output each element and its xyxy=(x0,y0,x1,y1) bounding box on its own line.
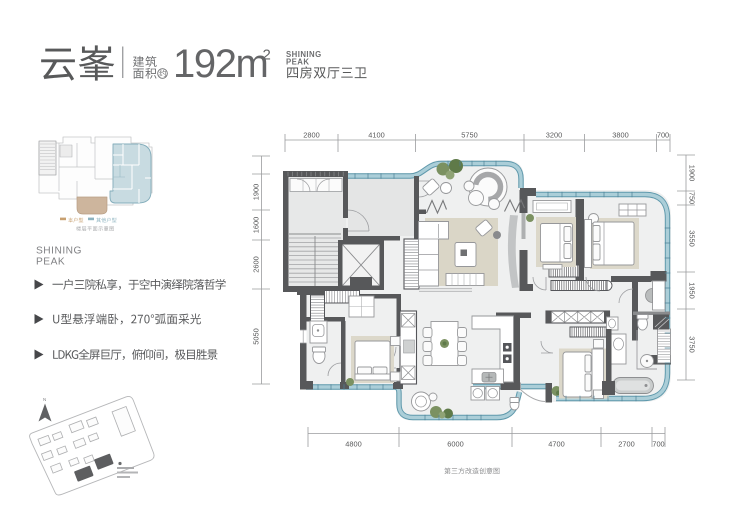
svg-text:192m: 192m xyxy=(173,42,267,86)
svg-text:PEAK: PEAK xyxy=(36,257,65,268)
svg-text:1950: 1950 xyxy=(688,282,697,298)
svg-text:2: 2 xyxy=(263,47,271,64)
svg-text:750: 750 xyxy=(688,192,697,204)
svg-text:5050: 5050 xyxy=(252,328,261,344)
svg-text:2800: 2800 xyxy=(303,131,319,140)
svg-text:N: N xyxy=(43,397,46,402)
svg-text:4700: 4700 xyxy=(548,440,564,449)
svg-text:700: 700 xyxy=(657,131,669,140)
svg-text:700: 700 xyxy=(652,440,664,449)
svg-text:PEAK: PEAK xyxy=(286,58,309,67)
svg-text:6000: 6000 xyxy=(447,440,463,449)
svg-text:4100: 4100 xyxy=(368,131,384,140)
svg-text:1900: 1900 xyxy=(688,165,697,181)
svg-text:3550: 3550 xyxy=(688,230,697,246)
svg-text:3200: 3200 xyxy=(546,131,562,140)
svg-text:SHINING: SHINING xyxy=(36,246,82,257)
svg-text:2700: 2700 xyxy=(618,440,634,449)
svg-text:3750: 3750 xyxy=(688,336,697,352)
svg-text:2600: 2600 xyxy=(252,256,261,272)
svg-text:5750: 5750 xyxy=(461,131,477,140)
svg-text:4800: 4800 xyxy=(345,440,361,449)
svg-text:1600: 1600 xyxy=(252,217,261,233)
svg-text:1900: 1900 xyxy=(252,184,261,200)
svg-text:3800: 3800 xyxy=(612,131,628,140)
